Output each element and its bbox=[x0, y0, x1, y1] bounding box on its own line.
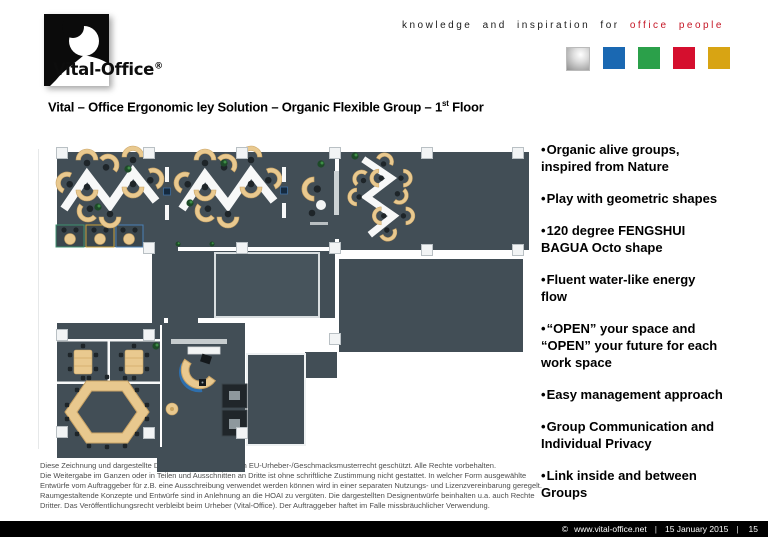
color-square-green bbox=[638, 47, 660, 69]
tagline-black: knowledge and inspiration for bbox=[402, 20, 620, 31]
color-square-silver bbox=[566, 47, 590, 71]
footer-url: www.vital-office.net bbox=[574, 524, 647, 534]
brand-tagline: knowledge and inspiration for office peo… bbox=[402, 20, 768, 31]
bullet-list: Organic alive groups, inspired from Natu… bbox=[541, 141, 767, 516]
legal-line: Entwürfe vom Auftraggeber für z.B. eine … bbox=[40, 481, 545, 491]
slide: { "brand": { "logo_text": "Vital-Office"… bbox=[0, 0, 768, 543]
floor-plan bbox=[38, 143, 535, 482]
legal-line: Dritter. Das Veröffentlichungsrecht verb… bbox=[40, 501, 545, 511]
page-title: Vital – Office Ergonomic ley Solution – … bbox=[48, 99, 588, 114]
tagline-red: office people bbox=[630, 20, 724, 31]
bullet-item: Organic alive groups, inspired from Natu… bbox=[541, 141, 767, 175]
copyright-symbol: © bbox=[562, 524, 568, 534]
bullet-item: Easy management approach bbox=[541, 386, 767, 403]
footer-bar: ©www.vital-office.net|15 January 2015|15 bbox=[0, 521, 768, 537]
color-square-red bbox=[673, 47, 695, 69]
logo-wordmark: Vital-Office® bbox=[53, 60, 163, 79]
registered-mark: ® bbox=[154, 62, 163, 72]
footer-page-number: 15 bbox=[749, 524, 758, 534]
bullet-item: Group Communication and Individual Priva… bbox=[541, 418, 767, 452]
footer-separator: | bbox=[655, 524, 657, 534]
legal-line: Raumgestaltende Konzepte und Entwürfe si… bbox=[40, 491, 545, 501]
bullet-item: Play with geometric shapes bbox=[541, 190, 767, 207]
footer-separator: | bbox=[736, 524, 738, 534]
bullet-item: 120 degree FENGSHUI BAGUA Octo shape bbox=[541, 222, 767, 256]
bullet-item: “OPEN” your space and “OPEN” your future… bbox=[541, 320, 767, 371]
brand-color-squares bbox=[566, 47, 730, 71]
bullet-item: Fluent water-like energy flow bbox=[541, 271, 767, 305]
color-square-gold bbox=[708, 47, 730, 69]
phone-rooms bbox=[56, 225, 143, 247]
room-floors bbox=[57, 152, 529, 472]
footer-date: 15 January 2015 bbox=[665, 524, 728, 534]
bullet-item: Link inside and between Groups bbox=[541, 467, 767, 501]
color-square-blue bbox=[603, 47, 625, 69]
